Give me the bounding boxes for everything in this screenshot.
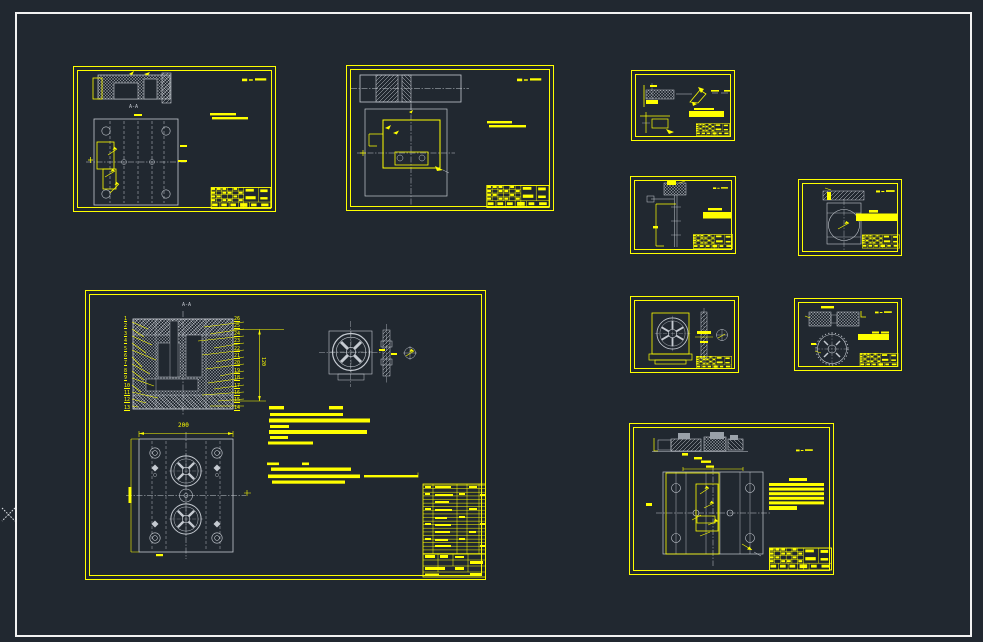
drawing-sheet-pin[interactable] bbox=[630, 176, 736, 254]
balloon-column-right: 26252423222120191817161514 bbox=[234, 317, 246, 411]
balloon-number: 5 bbox=[124, 347, 127, 352]
balloon-number: 23 bbox=[234, 339, 240, 344]
drawing-sheet-top-middle[interactable] bbox=[346, 65, 554, 211]
balloon-number: 11 bbox=[124, 391, 130, 396]
scale-mark bbox=[875, 311, 892, 313]
sheet-g-geometry bbox=[795, 299, 901, 370]
cad-model-space-canvas[interactable]: { "workspace": { "background_color": "#2… bbox=[0, 0, 983, 642]
balloon-number: 8 bbox=[124, 369, 127, 374]
balloon-number: 13 bbox=[124, 406, 130, 411]
balloon-number: 18 bbox=[234, 376, 240, 381]
title-block bbox=[486, 185, 549, 208]
scale-mark bbox=[713, 187, 728, 189]
sheet-a-geometry bbox=[74, 67, 275, 211]
drawing-sheet-bushing[interactable] bbox=[798, 179, 902, 256]
drawing-sheet-top-left[interactable]: A-A bbox=[73, 66, 276, 212]
balloon-number: 6 bbox=[124, 354, 127, 359]
balloon-column-left: 12345678910111213 bbox=[124, 317, 134, 411]
balloon-number: 21 bbox=[234, 354, 240, 359]
scale-mark bbox=[876, 190, 895, 192]
balloon-number: 24 bbox=[234, 332, 240, 337]
title-block bbox=[769, 548, 832, 571]
balloon-number: 16 bbox=[234, 391, 240, 396]
balloon-number: 19 bbox=[234, 369, 240, 374]
sheet-e-geometry bbox=[799, 180, 901, 255]
balloon-number: 7 bbox=[124, 361, 127, 366]
balloon-number: 2 bbox=[124, 324, 127, 329]
dim-right-label: 120 bbox=[260, 357, 265, 366]
balloon-number: 9 bbox=[124, 376, 127, 381]
crosshair-cursor-icon bbox=[1, 507, 16, 522]
sheet-d-geometry bbox=[631, 177, 735, 253]
title-block bbox=[693, 234, 733, 249]
balloon-number: 25 bbox=[234, 324, 240, 329]
balloon-number: 17 bbox=[234, 384, 240, 389]
scale-mark bbox=[242, 78, 266, 81]
balloon-number: 14 bbox=[234, 406, 240, 411]
balloon-number: 1 bbox=[124, 317, 127, 322]
balloon-number: 26 bbox=[234, 317, 240, 322]
drawing-sheet-gear[interactable] bbox=[794, 298, 902, 371]
balloon-number: 20 bbox=[234, 361, 240, 366]
sheet-b-geometry bbox=[347, 66, 553, 210]
title-block bbox=[211, 187, 272, 209]
section-label: A-A bbox=[182, 303, 191, 308]
drawing-sheet-wheel[interactable] bbox=[630, 296, 739, 373]
title-block bbox=[860, 353, 899, 367]
balloon-number: 22 bbox=[234, 347, 240, 352]
sheet-h-geometry bbox=[86, 291, 485, 579]
sheet-i-geometry bbox=[630, 424, 833, 574]
balloon-number: 15 bbox=[234, 398, 240, 403]
drawing-sheet-small-parts[interactable] bbox=[631, 70, 735, 141]
sheet-f-geometry bbox=[631, 297, 738, 372]
drawing-sheet-assembly[interactable]: A-A 200 120 12345678910111213 2625242322… bbox=[85, 290, 486, 580]
drawing-sheet-bottom-right[interactable] bbox=[629, 423, 834, 575]
section-label: A-A bbox=[129, 105, 138, 110]
scale-mark bbox=[796, 449, 813, 451]
balloon-number: 10 bbox=[124, 384, 130, 389]
sheet-c-geometry bbox=[632, 71, 734, 140]
balloon-number: 4 bbox=[124, 339, 127, 344]
title-block bbox=[696, 123, 730, 135]
dim-top-label: 200 bbox=[178, 423, 189, 429]
balloon-number: 12 bbox=[124, 398, 130, 403]
title-block bbox=[862, 235, 900, 249]
balloon-number: 3 bbox=[124, 332, 127, 337]
scale-mark bbox=[517, 78, 541, 81]
